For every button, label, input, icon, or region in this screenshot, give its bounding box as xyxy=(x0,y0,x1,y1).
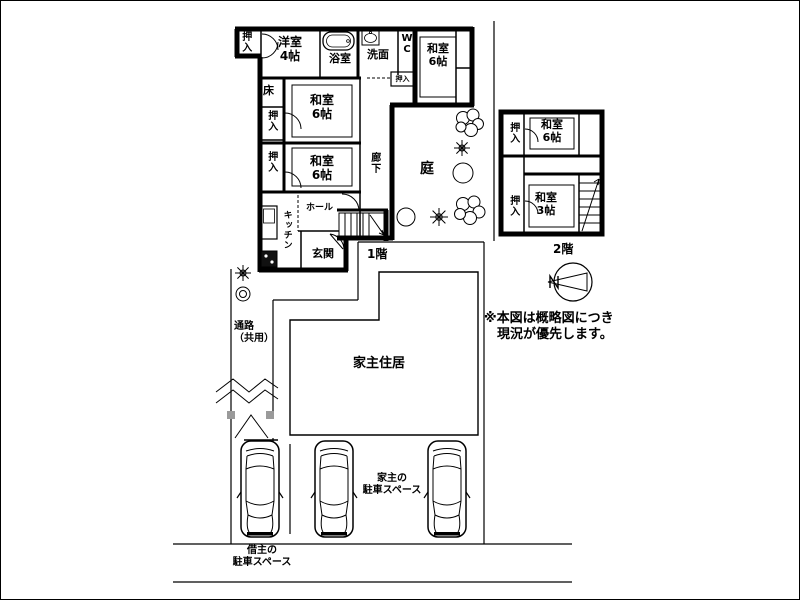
shrub-star-icon xyxy=(430,208,448,226)
room-label-tatami-2f-3: 和室 3帖 xyxy=(525,192,567,218)
room-label-entrance: 玄関 xyxy=(303,248,343,261)
compass-north-icon xyxy=(548,263,592,301)
stairs-second-floor-icon xyxy=(579,179,601,231)
room-label-tatami-ne: 和室 6帖 xyxy=(418,43,458,69)
room-label-western-room: 洋室 4帖 xyxy=(263,35,317,63)
car-tenant xyxy=(237,441,283,537)
room-label-alcove: 床 xyxy=(263,85,274,98)
room-label-closet-3: 押入 xyxy=(265,151,277,173)
car-owner-2 xyxy=(424,441,470,537)
car-owner-1 xyxy=(311,441,357,537)
kitchen-counter-icon xyxy=(261,206,277,267)
room-label-wc: W C xyxy=(400,33,414,55)
gate-icon xyxy=(227,411,278,440)
room-label-closet-mini: 押入 xyxy=(393,75,412,83)
disclaimer-note: ※本図は概略図につき 現況が優先します。 xyxy=(484,311,614,344)
floor-plan-drawing xyxy=(1,1,800,600)
bathtub-icon xyxy=(323,32,354,50)
shrub-star-icon xyxy=(235,265,251,281)
owner-residence-outline xyxy=(290,272,478,435)
tenant-parking-label: 借主の 駐車スペース xyxy=(228,545,296,569)
room-label-tatami-2f-6: 和室 6帖 xyxy=(531,119,573,145)
room-label-garden: 庭 xyxy=(420,161,434,178)
tree-circle-icon xyxy=(453,163,473,183)
shrub-star-icon xyxy=(454,140,470,156)
second-floor-label: 2階 xyxy=(553,242,573,256)
site-boundary-lines xyxy=(173,21,572,582)
room-label-corridor: 廊下 xyxy=(368,152,380,174)
room-label-tatami-1: 和室 6帖 xyxy=(291,93,353,121)
passage-label: 通路 （共用） xyxy=(234,321,274,345)
room-label-closet-2f-lower: 押入 xyxy=(507,195,519,217)
break-symbol xyxy=(216,379,278,403)
tree-circle-icon xyxy=(397,208,415,226)
room-label-closet-2: 押入 xyxy=(265,110,277,132)
room-label-closet-tl: 押入 xyxy=(239,31,251,53)
room-label-washroom: 洗面 xyxy=(359,49,397,62)
tree-cloud-icon xyxy=(455,196,486,225)
room-label-bathroom: 浴室 xyxy=(323,53,357,66)
owner-residence-label: 家主住居 xyxy=(353,356,405,371)
washbasin-icon xyxy=(362,30,379,45)
stairs-first-floor-icon xyxy=(339,213,385,237)
room-label-hall: ホール xyxy=(306,203,333,214)
first-floor-label: 1階 xyxy=(367,247,387,261)
room-label-kitchen: キッチン xyxy=(281,210,292,250)
plant-donut-icon xyxy=(236,287,250,301)
parked-cars xyxy=(237,441,470,537)
room-label-tatami-2: 和室 6帖 xyxy=(291,154,353,182)
floor-plan-document: 押入 洋室 4帖 浴室 洗面 W C 和室 6帖 押入 床 和室 6帖 押入 押… xyxy=(0,0,800,600)
owner-parking-label: 家主の 駐車スペース xyxy=(360,473,424,497)
tree-cloud-icon xyxy=(456,109,484,137)
room-label-closet-2f-upper: 押入 xyxy=(507,122,519,144)
